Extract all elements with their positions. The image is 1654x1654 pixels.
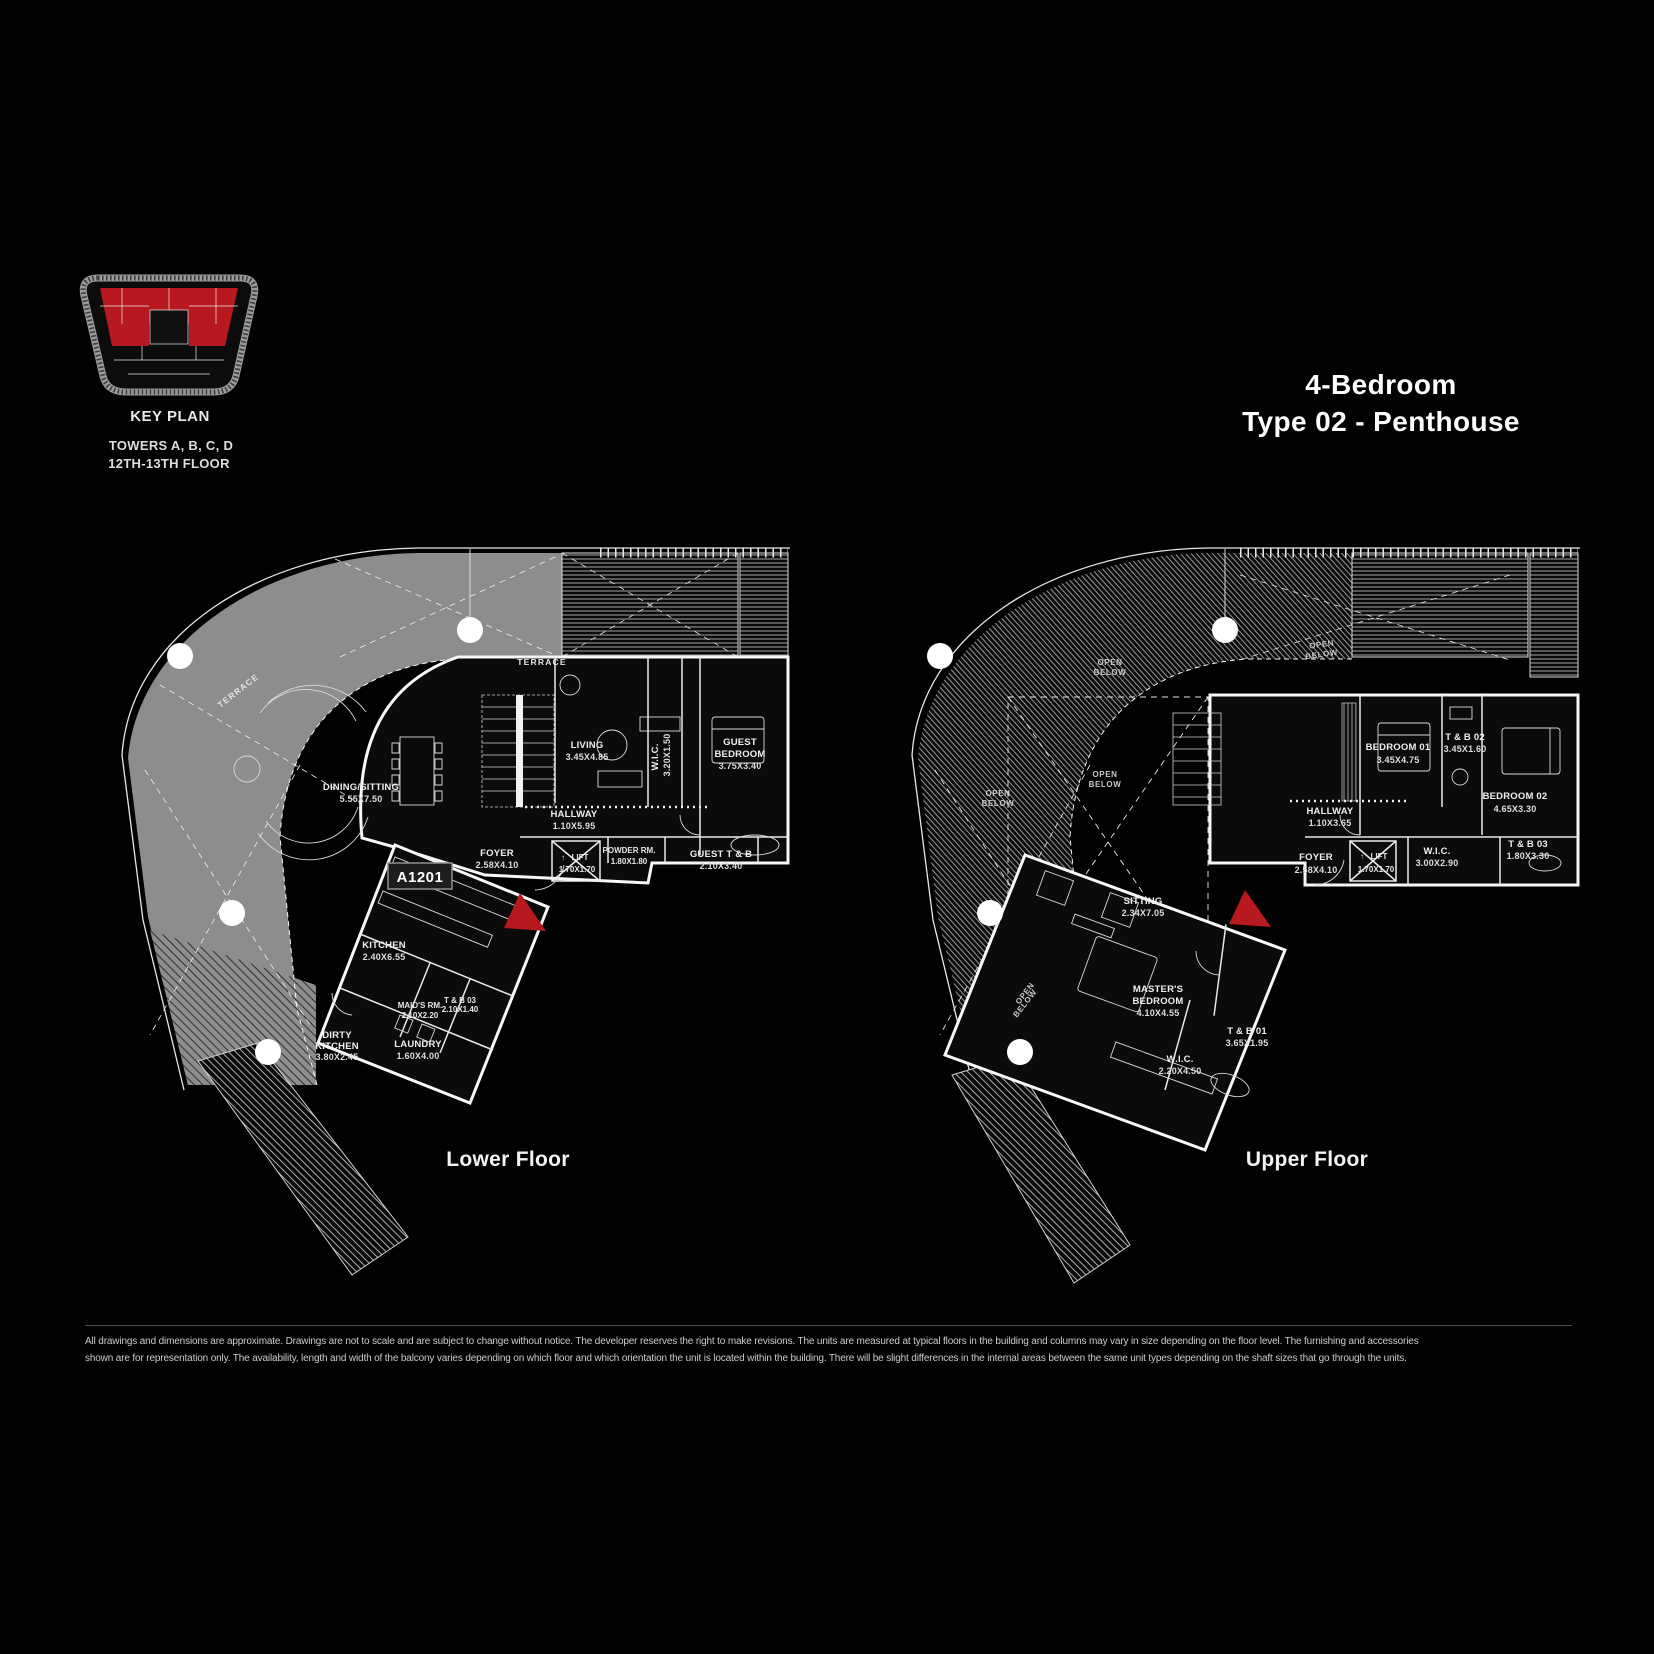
room-foyer-name: FOYER: [1299, 852, 1333, 863]
room-lift-name: LIFT: [1371, 852, 1388, 861]
room-maids-dims: 2.10X2.20: [402, 1011, 439, 1020]
room-foyer-dims: 2.58X4.10: [1295, 865, 1338, 875]
room-guest-bedroom-name1: GUEST: [723, 737, 757, 748]
room-tb01-dims: 3.65X1.95: [1226, 1038, 1269, 1048]
room-guest-tb-name: GUEST T & B: [690, 849, 752, 860]
room-sitting-name: SITTING: [1124, 896, 1163, 907]
open-below-3a: OPEN: [985, 789, 1010, 798]
room-lift-dims: 1.70X1.70: [1358, 865, 1395, 874]
room-dirty-kitchen-name2: KITCHEN: [315, 1041, 359, 1052]
room-lift-name: LIFT: [572, 853, 589, 862]
entry-marker-upper: [1229, 890, 1271, 927]
room-powder-dims: 1.80X1.80: [611, 857, 648, 866]
room-hallway-dims: 1.10X3.65: [1309, 818, 1352, 828]
room-laundry-dims: 1.60X4.00: [397, 1051, 440, 1061]
room-bedroom02-dims: 4.65X3.30: [1494, 804, 1537, 814]
page: KEY PLAN TOWERS A, B, C, D 12TH-13TH FLO…: [0, 0, 1654, 1654]
room-wic-name: W.I.C.: [1423, 846, 1450, 857]
open-below-1b: BELOW: [1094, 668, 1127, 677]
room-hallway-dims: 1.10X5.95: [553, 821, 596, 831]
lower-floor-caption: Lower Floor: [446, 1148, 569, 1172]
room-dining-name: DINING/SITTING: [323, 782, 399, 793]
room-sitting-dims: 2.34X7.05: [1122, 908, 1165, 918]
room-bedroom01-name: BEDROOM 01: [1366, 742, 1431, 753]
open-below-4a: OPEN: [1092, 770, 1117, 779]
closet-strip: [1342, 703, 1356, 801]
key-plan-floors: 12TH-13TH FLOOR: [108, 456, 230, 471]
terrace-label-top: TERRACE: [517, 657, 567, 667]
room-master-dims: 4.10X4.55: [1137, 1008, 1180, 1018]
room-master-wic-name: W.I.C.: [1166, 1054, 1193, 1065]
room-maids-name: MAID'S RM.: [398, 1001, 443, 1010]
room-kitchen-dims: 2.40X6.55: [363, 952, 406, 962]
open-below-3b: BELOW: [982, 799, 1015, 808]
disclaimer: All drawings and dimensions are approxim…: [85, 1333, 1585, 1367]
room-bedroom02-name: BEDROOM 02: [1483, 791, 1548, 802]
room-wic-name: W.I.C.: [650, 743, 661, 770]
room-hallway-name: HALLWAY: [1307, 806, 1354, 817]
room-kitchen-name: KITCHEN: [362, 940, 406, 951]
disclaimer-line1: All drawings and dimensions are approxim…: [85, 1333, 1585, 1350]
lower-floor-plan: A1201 TERRACE TERRACE DINING/SITTING 5.5…: [100, 545, 800, 1285]
room-tb03-dims: 2.10X1.40: [442, 1005, 479, 1014]
key-plan-towers: TOWERS A, B, C, D: [109, 438, 233, 453]
upper-floor-caption: Upper Floor: [1246, 1148, 1368, 1172]
room-guest-tb-dims: 2.10X3.40: [700, 861, 743, 871]
room-wic-dims: 3.00X2.90: [1416, 858, 1459, 868]
room-living-name: LIVING: [571, 740, 604, 751]
room-tb01-name: T & B 01: [1227, 1026, 1267, 1037]
unit-badge-label: A1201: [397, 869, 444, 886]
key-plan-graphic: [62, 264, 277, 400]
room-wic-dims: 3.20X1.50: [662, 734, 672, 777]
lift-arrow-icon: ↑: [561, 853, 565, 862]
page-title: 4-Bedroom Type 02 - Penthouse: [1242, 366, 1520, 440]
page-title-line2: Type 02 - Penthouse: [1242, 403, 1520, 440]
key-plan-label: KEY PLAN: [130, 408, 210, 425]
disclaimer-line2: shown are for representation only. The a…: [85, 1350, 1585, 1367]
room-bedroom01-dims: 3.45X4.75: [1377, 755, 1420, 765]
room-dirty-kitchen-dims: 3.80X2.45: [316, 1052, 359, 1062]
room-guest-bedroom-dims: 3.75X3.40: [719, 761, 762, 771]
room-master-wic-dims: 2.20X4.50: [1159, 1066, 1202, 1076]
lift-arrow-icon: ↑: [1360, 852, 1364, 861]
room-dirty-kitchen-name1: DIRTY: [322, 1030, 352, 1041]
room-hallway-name: HALLWAY: [551, 809, 598, 820]
room-laundry-name: LAUNDRY: [394, 1039, 442, 1050]
room-tb03-dims: 1.80X3.30: [1507, 851, 1550, 861]
upper-floor-plan: OPEN BELOW OPEN BELOW OPEN BELOW OPEN BE…: [890, 545, 1590, 1285]
room-tb03-name: T & B 03: [444, 996, 477, 1005]
room-master-name1: MASTER'S: [1133, 984, 1183, 995]
open-below-1a: OPEN: [1097, 658, 1122, 667]
room-master-name2: BEDROOM: [1132, 996, 1183, 1007]
unit-badge: A1201: [388, 863, 452, 889]
room-dining-dims: 5.55X7.50: [340, 794, 383, 804]
room-tb03-name: T & B 03: [1508, 839, 1548, 850]
room-powder-name: POWDER RM.: [603, 846, 656, 855]
room-tb02-name: T & B 02: [1445, 732, 1485, 743]
room-living-dims: 3.45X4.85: [566, 752, 609, 762]
divider-line: [85, 1325, 1572, 1326]
room-foyer-dims: 2.58X4.10: [476, 860, 519, 870]
page-title-line1: 4-Bedroom: [1242, 366, 1520, 403]
room-tb02-dims: 3.45X1.60: [1444, 744, 1487, 754]
room-foyer-name: FOYER: [480, 848, 514, 859]
room-lift-dims: 1.70X1.70: [559, 865, 596, 874]
open-below-4b: BELOW: [1089, 780, 1122, 789]
room-guest-bedroom-name2: BEDROOM: [714, 749, 765, 760]
